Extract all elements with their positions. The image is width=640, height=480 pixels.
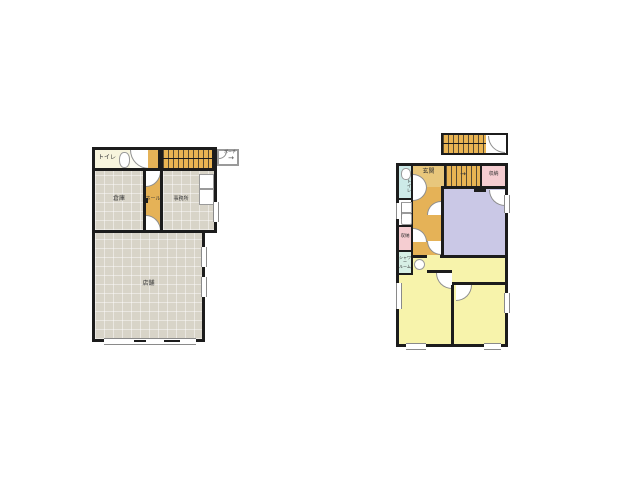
storefront-window bbox=[104, 338, 196, 345]
wall bbox=[411, 255, 427, 258]
toilet-bowl-icon bbox=[119, 152, 130, 168]
room-shower-2f-label: シャワー ルーム bbox=[398, 256, 412, 269]
room-office-1f-label: 事務所 bbox=[163, 197, 199, 203]
window-marker bbox=[396, 283, 402, 309]
office-cabinet-icon bbox=[199, 189, 214, 205]
floor-plan-1f: トイレ ポーチ → 倉庫 ホール 事務所 bbox=[92, 147, 240, 345]
window-marker bbox=[504, 293, 510, 313]
room-toilet-2f-label: トイレ bbox=[402, 179, 410, 193]
stairs-2f-top bbox=[443, 135, 486, 153]
wall bbox=[505, 163, 508, 347]
counter-icon bbox=[401, 202, 412, 213]
storefront-door-track bbox=[134, 340, 146, 342]
entry-hall-strip bbox=[148, 150, 158, 168]
office-cabinet-icon bbox=[199, 174, 214, 189]
room-storage-upper-2f-label: 収納 bbox=[482, 172, 505, 178]
wall bbox=[440, 255, 505, 258]
room-shop-1f-label: 店舗 bbox=[95, 281, 202, 288]
stairs-1f-centerline bbox=[163, 158, 212, 159]
floorplan-canvas: トイレ ポーチ → 倉庫 ホール 事務所 bbox=[0, 0, 640, 480]
closet-door-mark bbox=[474, 189, 486, 192]
window-marker bbox=[213, 202, 219, 222]
porch-arrow: → bbox=[225, 155, 237, 163]
window-marker bbox=[201, 277, 207, 297]
washing-machine-icon bbox=[414, 259, 425, 270]
stairs-2f-arrow: → bbox=[448, 171, 478, 179]
sink-icon bbox=[401, 213, 412, 225]
room-storage-lower-2f-label: 収納 bbox=[399, 235, 411, 240]
stairs-2f-top-centerline bbox=[443, 143, 486, 144]
wall bbox=[451, 285, 454, 344]
window-marker bbox=[396, 203, 402, 219]
window-marker bbox=[484, 343, 501, 350]
floor-plan-2f: トイレ 玄関 → 収納 収納 シャワー ルー bbox=[396, 133, 508, 350]
window-marker bbox=[406, 343, 426, 350]
wall bbox=[441, 189, 444, 255]
room-toilet-1f-label: トイレ bbox=[94, 155, 120, 162]
storefront-door-track bbox=[164, 340, 180, 342]
stairs-1f bbox=[163, 150, 212, 168]
window-marker bbox=[201, 247, 207, 267]
wall bbox=[92, 147, 217, 150]
window-marker bbox=[504, 195, 510, 213]
